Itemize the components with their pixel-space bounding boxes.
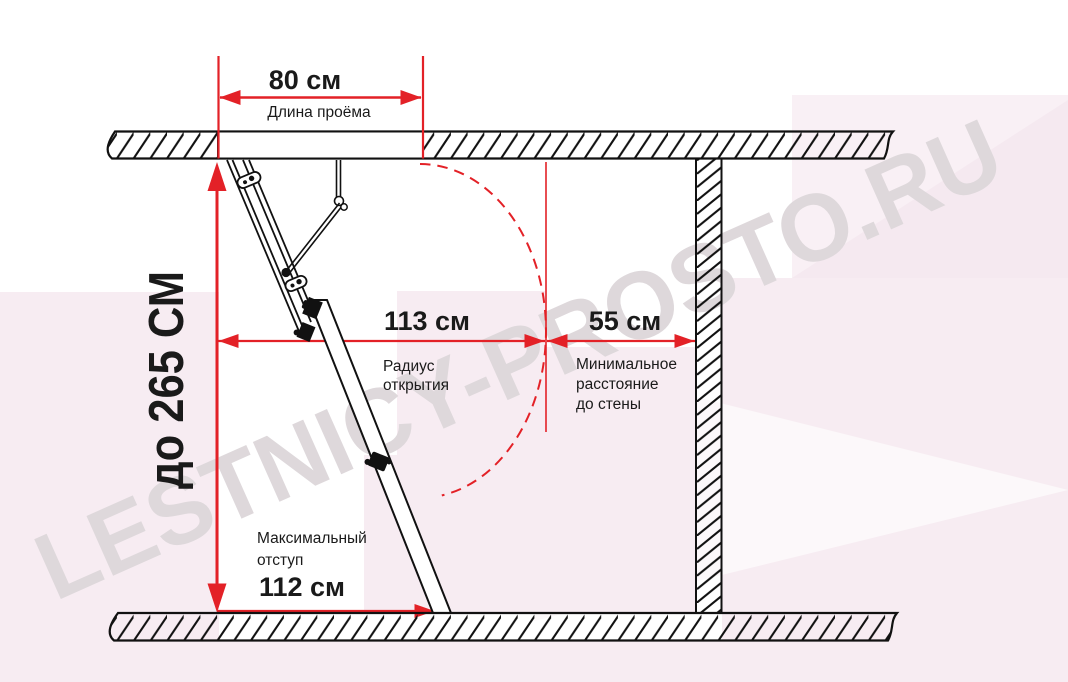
- svg-text:открытия: открытия: [383, 377, 449, 394]
- svg-text:80 см: 80 см: [269, 65, 342, 95]
- svg-text:55 см: 55 см: [589, 306, 662, 336]
- svg-text:Радиус: Радиус: [383, 358, 435, 375]
- svg-text:113 см: 113 см: [384, 306, 470, 336]
- svg-text:до стены: до стены: [576, 396, 641, 413]
- svg-text:Минимальное: Минимальное: [576, 356, 677, 373]
- svg-text:112 см: 112 см: [259, 572, 345, 602]
- svg-text:до 265 СМ: до 265 СМ: [140, 271, 194, 489]
- svg-text:отступ: отступ: [257, 552, 303, 569]
- svg-text:расстояние: расстояние: [576, 376, 659, 393]
- svg-text:Максимальный: Максимальный: [257, 530, 367, 547]
- svg-text:Длина проёма: Длина проёма: [267, 104, 371, 121]
